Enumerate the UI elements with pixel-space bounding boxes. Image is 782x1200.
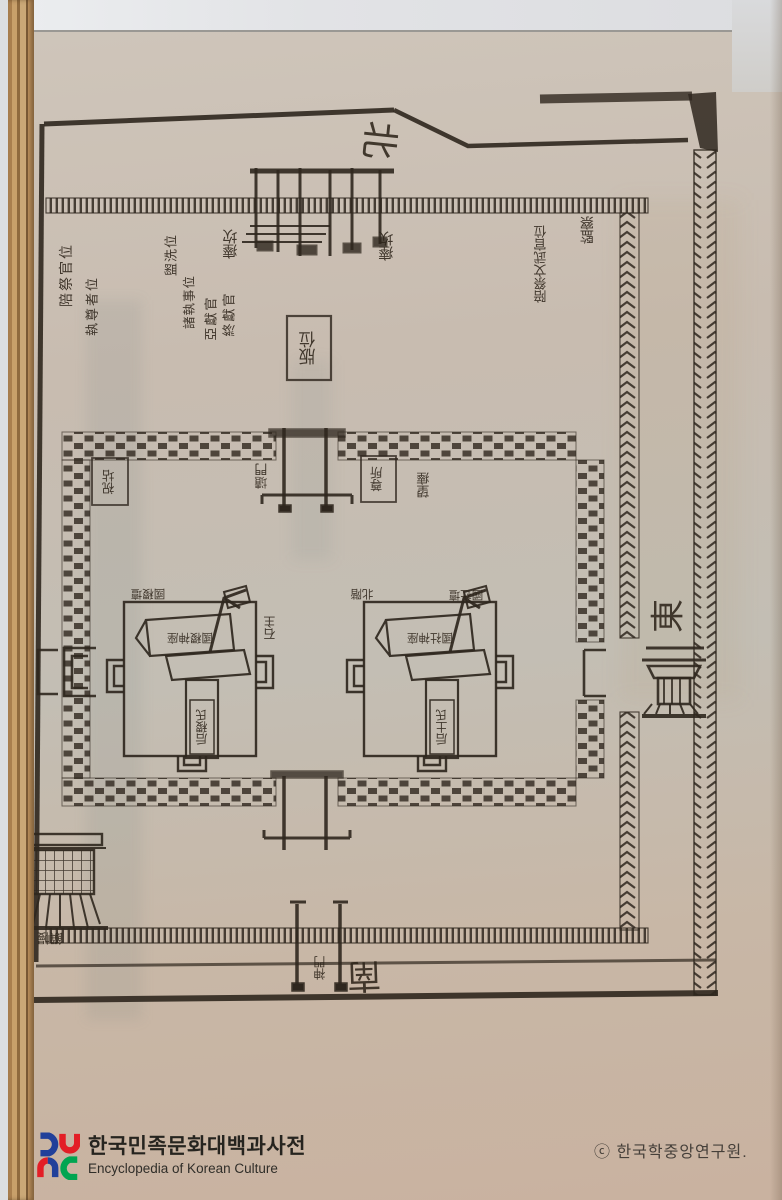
photo-left-edge	[0, 0, 8, 1200]
encyclopedia-watermark: 한국민족문화대백과사전 Encyclopedia of Korean Cultu…	[34, 1130, 306, 1180]
label-jejipsa-position: 諸執事位	[184, 275, 197, 329]
label-tent: 饌幔	[37, 931, 63, 944]
label-second-offerer: 亞獻官	[204, 295, 217, 340]
middle-wall	[46, 198, 648, 943]
copyright-notice: ⓒ 한국학중앙연구원.	[594, 1138, 748, 1162]
book-binding-edge	[8, 0, 34, 1200]
photo-right-edge	[770, 0, 782, 1200]
direction-label-east: 東	[653, 599, 688, 633]
label-south-gate: 神門	[314, 956, 326, 980]
label-banner-right: 國社神座	[407, 630, 453, 642]
book-photo: 北 東 南 瘞坎 瘞坎 監察 陪祭文武官位 陪祭官位 執尊者位 盥洗位 諸執事位…	[0, 0, 782, 1200]
label-tablet-left: 后稷氏	[196, 709, 208, 745]
label-altar-left-name: 國稷壇	[131, 586, 166, 598]
outer-wall	[34, 92, 718, 1000]
altar-right	[347, 586, 513, 771]
encyclopedia-logo-icon	[34, 1130, 80, 1180]
label-jipjon-position: 執尊者位	[85, 276, 98, 336]
direction-label-south: 南	[346, 956, 381, 992]
label-boxes	[92, 316, 396, 505]
label-gwanse-position: 盥洗位	[164, 234, 177, 276]
label-banner-left: 國稷神座	[167, 630, 213, 642]
label-attendants-ne: 陪祭文武官位	[534, 225, 547, 303]
label-box-west: 祝坫	[104, 470, 117, 495]
label-monitor: 監察	[582, 216, 596, 244]
label-pit-right: 瘞坎	[380, 231, 395, 261]
label-pit-left: 瘞坎	[224, 229, 239, 259]
logo-korean-title: 한국민족문화대백과사전	[88, 1130, 306, 1160]
label-final-offerer: 終獻官	[222, 291, 235, 336]
label-seokju: 石主	[264, 616, 276, 640]
label-inner-gate: 壝門	[255, 463, 268, 489]
label-tablet-right: 后土氏	[436, 709, 448, 745]
photo-top-edge	[0, 0, 782, 32]
label-baeje-officials: 陪祭官位	[61, 243, 75, 307]
direction-label-north: 北	[357, 119, 400, 161]
side-gates	[38, 648, 706, 716]
label-altar-right-name: 國社壇	[449, 587, 484, 599]
label-panwi: 版位	[300, 331, 317, 365]
logo-english-title: Encyclopedia of Korean Culture	[88, 1161, 306, 1176]
altar-left	[107, 586, 273, 771]
label-wangye: 望瘞	[417, 472, 430, 498]
label-stair: 北階	[351, 586, 374, 598]
inner-wall	[62, 432, 604, 806]
label-box-east: 尊所	[372, 467, 385, 492]
